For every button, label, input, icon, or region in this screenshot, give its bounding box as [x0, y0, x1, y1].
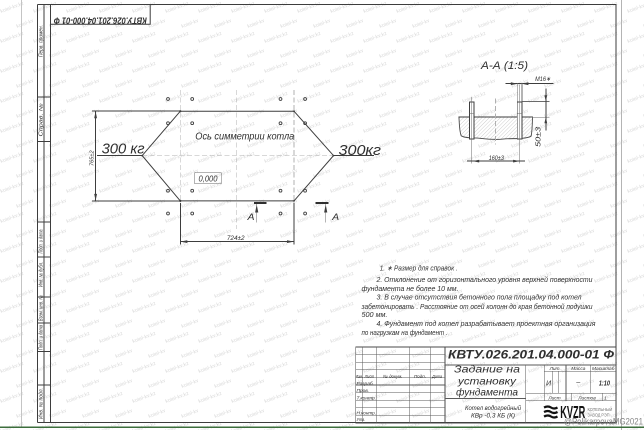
svg-text:А: А [246, 212, 254, 223]
svg-text:0,000: 0,000 [199, 173, 218, 183]
svg-text:160±3: 160±3 [489, 155, 504, 162]
svg-text:забетонировать . Расстояние от: забетонировать . Расстояние от осей коло… [361, 302, 593, 311]
svg-text:724±2: 724±2 [227, 235, 245, 242]
svg-text:установку: установку [457, 376, 517, 387]
svg-text:1: 1 [604, 396, 607, 402]
svg-text:1. ∗ Размер для справок .: 1. ∗ Размер для справок . [380, 264, 458, 273]
svg-text:КОТЕЛЬНЫЙ: КОТЕЛЬНЫЙ [588, 407, 613, 412]
svg-text:Изм.: Изм. [355, 374, 363, 379]
svg-text:И: И [546, 379, 552, 388]
svg-text:Инв. № дубл.: Инв. № дубл. [39, 262, 45, 287]
svg-text:50±3: 50±3 [533, 127, 542, 147]
svg-text:Н.контр.: Н.контр. [357, 411, 377, 416]
svg-text:Масса: Масса [571, 366, 586, 372]
svg-text:КВр -0,3 КБ (К): КВр -0,3 КБ (К) [471, 412, 515, 419]
svg-text:А-А (1:5): А-А (1:5) [480, 60, 528, 72]
svg-text:500 мм.: 500 мм. [362, 310, 388, 319]
svg-text:М16∗: М16∗ [535, 76, 551, 83]
svg-text:Масштаб: Масштаб [592, 366, 615, 372]
svg-text:Разраб.: Разраб. [357, 381, 375, 386]
svg-text:Подп. и дата: Подп. и дата [39, 229, 45, 253]
svg-text:2. Отклонение от горизонтально: 2. Отклонение от горизонтального уровня … [376, 275, 593, 284]
svg-text:3. В случае отсутствия бетонно: 3. В случае отсутствия бетонного пола пл… [377, 292, 583, 301]
svg-text:Дата: Дата [431, 374, 442, 379]
svg-text:Котел водогрейный: Котел водогрейный [465, 405, 522, 412]
svg-text:Подп.: Подп. [414, 374, 426, 379]
svg-text:по нагрузкам на фундамент .: по нагрузкам на фундамент . [362, 328, 448, 337]
svg-text:Утв.: Утв. [357, 417, 366, 422]
svg-text:Перв. примен.: Перв. примен. [39, 25, 45, 57]
svg-text:Т.контр.: Т.контр. [357, 396, 377, 401]
svg-text:Листов: Листов [577, 396, 596, 402]
svg-text:№ докум.: № докум. [383, 374, 403, 379]
svg-text:Лит.: Лит. [549, 366, 561, 372]
svg-text:Справ. №: Справ. № [39, 103, 45, 137]
svg-text:Подп. и дата: Подп. и дата [39, 325, 45, 350]
svg-text:Взам. инв. №: Взам. инв. № [39, 295, 45, 321]
svg-text:Лист: Лист [547, 396, 560, 402]
svg-text:фундамента: фундамента [456, 387, 519, 398]
svg-text:Задание на: Задание на [454, 364, 521, 375]
svg-text:765±2: 765±2 [90, 150, 96, 166]
svg-text:Лист: Лист [364, 374, 374, 379]
svg-text:300 кг: 300 кг [102, 142, 145, 158]
svg-text:КВТУ.026.201.04.000-01 Ф: КВТУ.026.201.04.000-01 Ф [54, 15, 147, 25]
svg-text:Инв. № подл.: Инв. № подл. [39, 388, 45, 419]
svg-text:А: А [331, 212, 339, 223]
svg-text:300кг: 300кг [339, 143, 382, 159]
svg-text:4. Фундамент под котел разраба: 4. Фундамент под котел разрабатывает про… [377, 319, 596, 328]
svg-text:Ось симметрии котла: Ось симметрии котла [195, 132, 294, 143]
svg-text:1:10: 1:10 [599, 379, 611, 388]
svg-text:КВТУ.026.201.04.000-01 Ф: КВТУ.026.201.04.000-01 Ф [448, 348, 615, 362]
svg-text:@PolikarpovaMG2021: @PolikarpovaMG2021 [564, 417, 643, 428]
svg-text:Пров.: Пров. [357, 388, 370, 393]
